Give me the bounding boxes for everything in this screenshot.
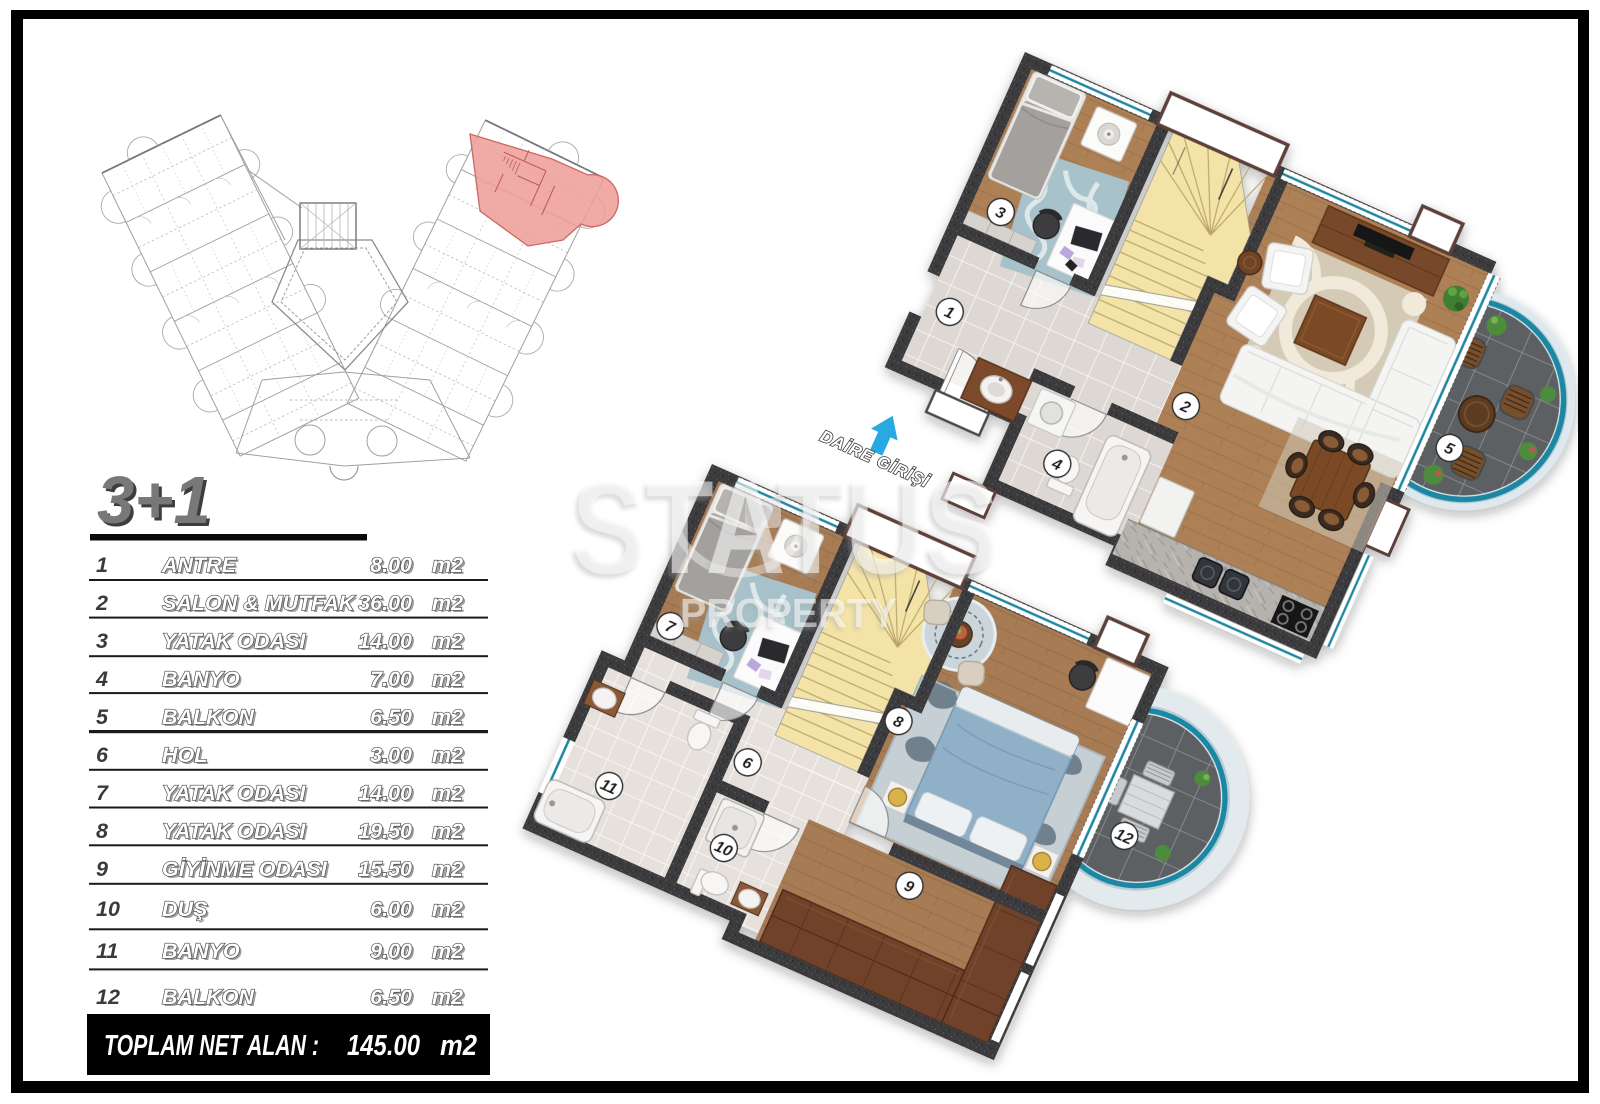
svg-text:3: 3 — [96, 629, 108, 653]
svg-text:YATAK ODASI: YATAK ODASI — [162, 629, 306, 653]
svg-text:m2: m2 — [432, 781, 463, 805]
svg-text:m2: m2 — [432, 553, 463, 577]
svg-text:ANTRE: ANTRE — [161, 553, 237, 577]
svg-text:m2: m2 — [440, 1030, 477, 1062]
svg-text:BANYO: BANYO — [162, 939, 240, 963]
svg-text:5: 5 — [96, 705, 109, 729]
svg-text:GİYİNME ODASI: GİYİNME ODASI — [162, 857, 328, 881]
svg-text:6.00: 6.00 — [370, 897, 412, 921]
svg-text:8: 8 — [96, 819, 108, 843]
svg-text:9: 9 — [96, 857, 108, 881]
svg-text:1: 1 — [96, 553, 108, 577]
svg-text:SALON & MUTFAK: SALON & MUTFAK — [162, 591, 356, 615]
svg-text:m2: m2 — [432, 629, 463, 653]
svg-text:6.50: 6.50 — [370, 985, 412, 1009]
svg-text:19.50: 19.50 — [358, 819, 412, 843]
svg-text:m2: m2 — [432, 819, 463, 843]
svg-text:m2: m2 — [432, 897, 463, 921]
svg-text:2: 2 — [95, 591, 108, 615]
svg-text:m2: m2 — [432, 939, 463, 963]
svg-text:BALKON: BALKON — [162, 985, 254, 1009]
svg-text:YATAK ODASI: YATAK ODASI — [162, 819, 306, 843]
svg-text:10: 10 — [96, 897, 120, 921]
svg-text:12: 12 — [96, 985, 120, 1009]
svg-text:HOL: HOL — [162, 743, 207, 767]
svg-text:9.00: 9.00 — [370, 939, 412, 963]
svg-text:m2: m2 — [432, 857, 463, 881]
svg-text:14.00: 14.00 — [358, 781, 412, 805]
svg-text:m2: m2 — [432, 743, 463, 767]
svg-text:7: 7 — [96, 781, 109, 805]
svg-text:36.00: 36.00 — [358, 591, 412, 615]
svg-text:6.50: 6.50 — [370, 705, 412, 729]
svg-text:14.00: 14.00 — [358, 629, 412, 653]
svg-text:4: 4 — [95, 667, 108, 691]
svg-text:3.00: 3.00 — [370, 743, 412, 767]
svg-text:DUŞ: DUŞ — [162, 897, 208, 921]
svg-text:3+1: 3+1 — [97, 463, 211, 538]
svg-text:m2: m2 — [432, 667, 463, 691]
svg-text:11: 11 — [96, 939, 118, 963]
svg-text:7.00: 7.00 — [370, 667, 412, 691]
svg-text:YATAK ODASI: YATAK ODASI — [162, 781, 306, 805]
svg-text:PROPERTY: PROPERTY — [680, 590, 897, 636]
svg-text:m2: m2 — [432, 985, 463, 1009]
svg-text:BANYO: BANYO — [162, 667, 240, 691]
svg-text:m2: m2 — [432, 591, 463, 615]
svg-text:m2: m2 — [432, 705, 463, 729]
svg-text:STATUS: STATUS — [572, 454, 999, 602]
svg-text:6: 6 — [96, 743, 109, 767]
svg-text:8.00: 8.00 — [370, 553, 412, 577]
svg-text:TOPLAM NET ALAN :: TOPLAM NET ALAN : — [104, 1030, 319, 1062]
svg-text:BALKON: BALKON — [162, 705, 254, 729]
svg-text:15.50: 15.50 — [358, 857, 412, 881]
svg-text:145.00: 145.00 — [347, 1030, 420, 1062]
